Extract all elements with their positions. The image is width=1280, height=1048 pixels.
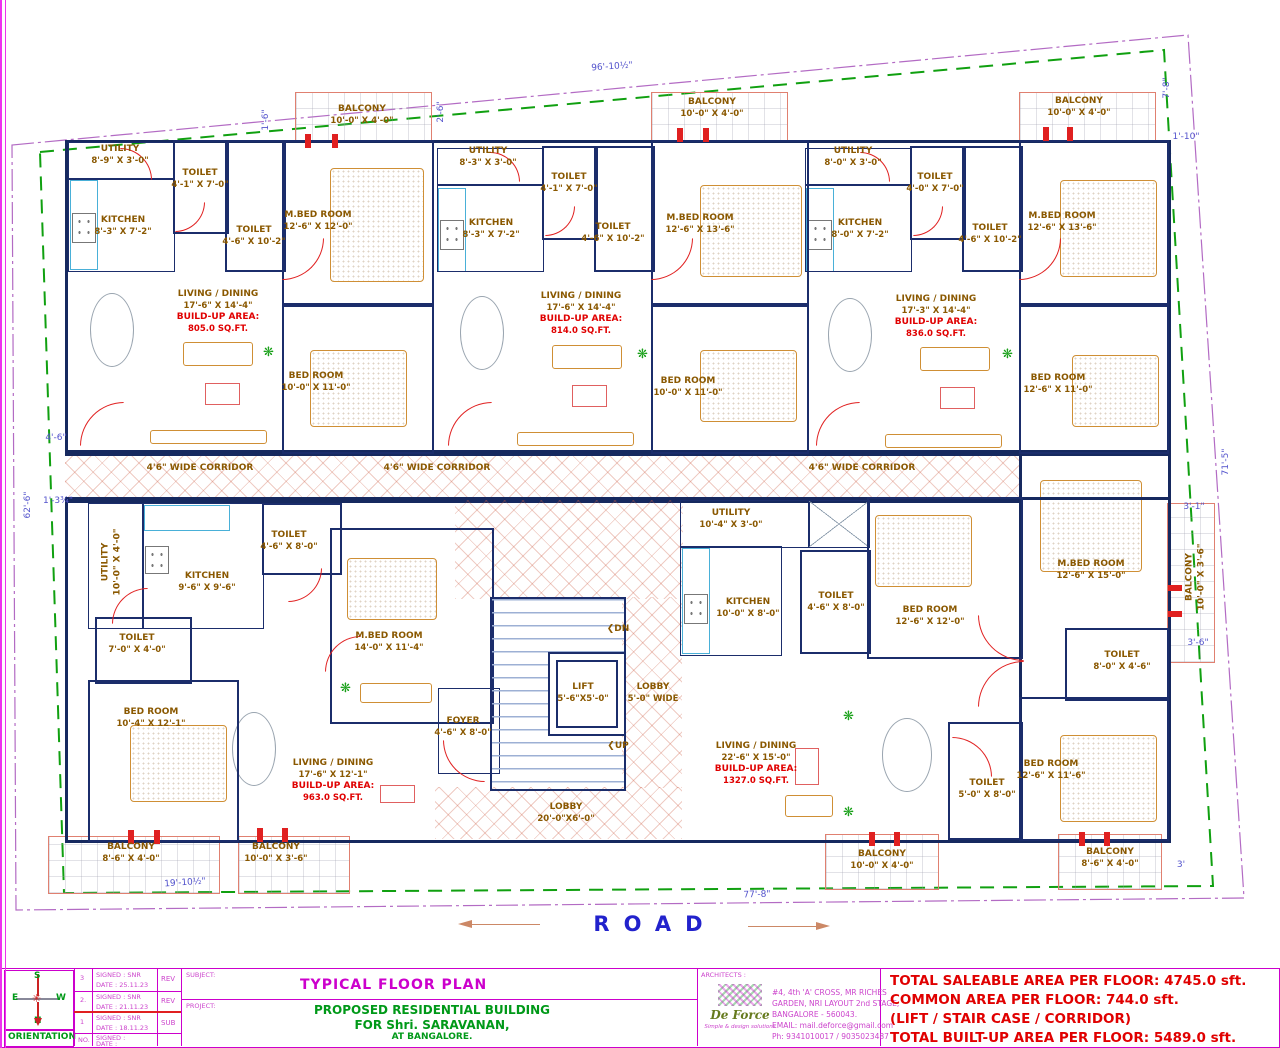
project-label: PROJECT: — [186, 1002, 216, 1010]
titleblock-border — [697, 968, 698, 1046]
corridor — [65, 450, 1022, 503]
label-living-e: LIVING / DINING22'-6" X 15'-0"BUILD-UP A… — [715, 741, 797, 787]
label-living-a: LIVING / DINING17'-6" X 14'-4"BUILD-UP A… — [177, 289, 259, 335]
rev-signed: SIGNED : SNR — [96, 1014, 141, 1022]
rev-status: REV — [161, 975, 175, 983]
project-line1: PROPOSED RESIDENTIAL BUILDING — [314, 1003, 550, 1017]
dim-top-right-v: 7'-8" — [1162, 77, 1172, 98]
rev-status: REV — [161, 997, 175, 1005]
compass-south: S — [34, 971, 40, 981]
sheet-border-left — [0, 0, 2, 1048]
dim-left-2: 1'-3¾" — [43, 496, 73, 506]
dim-top-left-2: 2'-6" — [436, 101, 446, 122]
rev-signed: SIGNED : SNR — [96, 993, 141, 1001]
road-arrow-left — [472, 924, 540, 925]
plant-icon: ❋ — [1002, 348, 1013, 361]
label-lift: LIFT5'-6"X5'-0" — [557, 682, 608, 705]
label-bed-c: BED ROOM12'-6" X 11'-0" — [1023, 373, 1092, 396]
plant-icon: ❋ — [637, 348, 648, 361]
dim-top-left-1: 1'-6" — [261, 109, 271, 130]
rev-date: DATE : — [96, 1040, 117, 1048]
label-balcony-b: BALCONY10'-0" X 4'-0" — [680, 97, 743, 120]
door-opening — [332, 134, 338, 148]
common-area: COMMON AREA PER FLOOR: 744.0 sft. — [890, 992, 1179, 1008]
label-utility-c: UTILITY8'-0" X 3'-0" — [824, 146, 881, 169]
titleblock-border — [182, 999, 697, 1000]
plant-icon: ❋ — [340, 682, 351, 695]
label-toilet2-a: TOILET4'-6" X 10'-2" — [222, 225, 285, 248]
label-kitchen-a: KITCHEN8'-3" X 7'-2" — [94, 215, 151, 238]
firm-tagline: Simple & design solutions — [704, 1024, 775, 1030]
dim-left-1: 4'-6" — [45, 433, 66, 443]
total-builtup-area: TOTAL BUILT-UP AREA PER FLOOR: 5489.0 sf… — [890, 1030, 1236, 1046]
label-mbed-c: M.BED ROOM12'-6" X 13'-6" — [1027, 211, 1096, 234]
label-balcony-c: BALCONY10'-0" X 4'-0" — [1047, 96, 1110, 119]
room-toilet2-c — [962, 146, 1023, 272]
door-opening — [1079, 832, 1085, 846]
label-stairs-dn: ❮DN — [607, 624, 630, 636]
dim-top-right-h: 1'-10" — [1172, 132, 1199, 142]
label-toilet1-d: TOILET4'-6" X 8'-0" — [260, 530, 317, 553]
label-balcony2-d: BALCONY10'-0" X 3'-6" — [244, 842, 307, 865]
compass-arrow-icon — [34, 1018, 42, 1026]
label-foyer-d: FOYER4'-6" X 8'-0" — [434, 716, 491, 739]
door-opening — [305, 134, 311, 148]
label-living-b: LIVING / DINING17'-6" X 14'-4"BUILD-UP A… — [540, 291, 622, 337]
project-line3: AT BANGALORE. — [392, 1032, 473, 1042]
label-lobby-side: LOBBY5'-0" WIDE — [628, 682, 679, 705]
revtable-border — [74, 991, 181, 992]
project-line2: FOR Shri. SARAVANAN, — [354, 1018, 509, 1032]
label-balcony-right-e: BALCONY10'-0" X 3'-6" — [1185, 544, 1208, 611]
label-living-c: LIVING / DINING17'-3" X 14'-4"BUILD-UP A… — [895, 294, 977, 340]
revtable-border — [92, 968, 93, 1046]
label-utility-b: UTILITY8'-3" X 3'-0" — [459, 146, 516, 169]
road-arrow-right-head — [816, 922, 830, 930]
door-opening — [282, 828, 288, 842]
label-toilet2-b: TOILET4'-6" X 10'-2" — [581, 222, 644, 245]
dim-right-3: 3' — [1177, 860, 1185, 870]
door-opening — [1168, 585, 1182, 591]
road-arrow-right — [748, 926, 816, 927]
label-toilet2-c: TOILET4'-6" X 10'-2" — [958, 223, 1021, 246]
firm-address-5: Ph: 9341010017 / 9035023487 — [772, 1032, 889, 1041]
label-mbed-e: M.BED ROOM12'-6" X 15'-0" — [1056, 559, 1125, 582]
rev-status: SUB — [161, 1019, 175, 1027]
road-arrow-left-head — [458, 920, 472, 928]
revtable-border — [74, 1033, 181, 1034]
label-toilet1-c: TOILET4'-0" X 7'-0" — [906, 172, 963, 195]
label-utility-a: UTILITY8'-9" X 3'-0" — [91, 144, 148, 167]
firm-address-2: GARDEN, NRI LAYOUT 2nd STAGE, — [772, 999, 899, 1008]
label-balcony-a: BALCONY10'-0" X 4'-0" — [330, 104, 393, 127]
rev-date: DATE : 18.11.23 — [96, 1024, 148, 1032]
revtable-border — [157, 968, 158, 1046]
architects-label: ARCHITECTS : — [701, 971, 746, 979]
sheet-border-left-inner — [5, 0, 6, 1048]
label-bed-b: BED ROOM10'-0" X 11'-0" — [653, 376, 722, 399]
label-balcony2-e: BALCONY8'-6" X 4'-0" — [1081, 847, 1138, 870]
plant-icon: ❋ — [843, 806, 854, 819]
wardrobe-x-symbol — [808, 500, 870, 548]
firm-address-4: EMAIL: mail.deforce@gmail.com — [772, 1021, 893, 1030]
room-toilet2-b — [594, 146, 655, 272]
dim-right-2: 3'-6" — [1187, 638, 1208, 648]
label-mbed-a: M.BED ROOM12'-6" X 12'-0" — [283, 210, 352, 233]
room-kitchen-d — [142, 503, 264, 629]
rev-signed: SIGNED : SNR — [96, 971, 141, 979]
compass-star-icon: ✳ — [32, 992, 41, 1005]
label-bed-d: BED ROOM10'-4" X 12'-1" — [116, 707, 185, 730]
rev-no: 3 — [80, 974, 84, 982]
door-opening — [894, 832, 900, 846]
common-area-note: (LIFT / STAIR CASE / CORRIDOR) — [890, 1011, 1131, 1027]
revtable-divider-red — [74, 1011, 181, 1013]
subject-label: SUBJECT: — [186, 971, 215, 979]
label-toilet1-a: TOILET4'-1" X 7'-0" — [171, 168, 228, 191]
door-opening — [1067, 127, 1073, 141]
label-toilet3-e: TOILET8'-0" X 4'-6" — [1093, 650, 1150, 673]
rev-no: 2. — [80, 996, 86, 1004]
compass-east: E — [12, 993, 18, 1003]
label-mbed-b: M.BED ROOM12'-6" X 13'-6" — [665, 213, 734, 236]
floor-plan-sheet: UTILITY8'-9" X 3'-0" TOILET4'-1" X 7'-0"… — [0, 0, 1280, 1048]
label-toilet2-d: TOILET7'-0" X 4'-0" — [108, 633, 165, 656]
label-balcony1-d: BALCONY8'-6" X 4'-0" — [102, 842, 159, 865]
firm-name: De Force — [710, 1008, 769, 1022]
door-opening — [1043, 127, 1049, 141]
label-bed1-e: BED ROOM12'-6" X 12'-0" — [895, 605, 964, 628]
label-toilet1-b: TOILET4'-1" X 7'-0" — [540, 172, 597, 195]
label-corridor-3: 4'6" WIDE CORRIDOR — [809, 463, 916, 475]
firm-address-1: #4, 4th 'A' CROSS, MR RICHES — [772, 988, 887, 997]
rev-no: 1 — [80, 1018, 84, 1026]
label-corridor-1: 4'6" WIDE CORRIDOR — [147, 463, 254, 475]
label-stairs-up: ❮UP — [607, 741, 628, 753]
dim-left: 62'-6" — [23, 491, 33, 518]
rev-date: DATE : 25.11.23 — [96, 981, 148, 989]
label-bed2-e: BED ROOM12'-6" X 11'-6" — [1016, 759, 1085, 782]
door-opening — [703, 128, 709, 142]
dim-bottom: 77'-8" — [743, 890, 770, 901]
label-kitchen-e: KITCHEN10'-0" X 8'-0" — [716, 597, 779, 620]
door-opening — [677, 128, 683, 142]
door-opening — [1104, 832, 1110, 846]
label-utility-e: UTILITY10'-4" X 3'-0" — [699, 508, 762, 531]
plant-icon: ❋ — [263, 346, 274, 359]
label-toilet1-e: TOILET4'-6" X 8'-0" — [807, 591, 864, 614]
firm-logo-icon — [718, 984, 762, 1006]
orientation-label: ORIENTATION — [8, 1032, 76, 1042]
rev-date: DATE : 21.11.23 — [96, 1003, 148, 1011]
label-mbed-d: M.BED ROOM14'-0" X 11'-4" — [354, 631, 423, 654]
label-kitchen-d: KITCHEN9'-6" X 9'-6" — [178, 571, 235, 594]
revtable-border — [181, 968, 182, 1046]
total-saleable-area: TOTAL SALEABLE AREA PER FLOOR: 4745.0 sf… — [890, 973, 1246, 989]
revtable-border — [74, 968, 75, 1046]
sheet-subject: TYPICAL FLOOR PLAN — [300, 977, 487, 993]
label-utility-d: UTILITY10'-0" X 4'-0" — [101, 529, 124, 596]
label-lobby-main: LOBBY20'-0"X6'-0" — [537, 802, 594, 825]
label-kitchen-b: KITCHEN8'-3" X 7'-2" — [462, 218, 519, 241]
room-toilet2-a — [225, 140, 286, 272]
label-kitchen-c: KITCHEN8'-0" X 7'-2" — [831, 218, 888, 241]
room-bed-d — [88, 680, 239, 842]
label-bed-a: BED ROOM10'-0" X 11'-0" — [281, 371, 350, 394]
rev-no: NO. — [78, 1036, 90, 1044]
door-opening — [1168, 611, 1182, 617]
road-label: ROAD — [593, 912, 716, 936]
firm-address-3: BANGALORE - 560043. — [772, 1010, 857, 1019]
dim-right-1: 3'-1" — [1183, 502, 1204, 512]
label-balcony1-e: BALCONY10'-0" X 4'-0" — [850, 849, 913, 872]
door-opening — [257, 828, 263, 842]
label-toilet2-e: TOILET5'-0" X 8'-0" — [958, 778, 1015, 801]
dim-right: 71'-5" — [1221, 448, 1231, 475]
compass-west: W — [56, 993, 66, 1003]
door-opening — [869, 832, 875, 846]
label-living-d: LIVING / DINING17'-6" X 12'-1"BUILD-UP A… — [292, 758, 374, 804]
label-corridor-2: 4'6" WIDE CORRIDOR — [384, 463, 491, 475]
plant-icon: ❋ — [843, 710, 854, 723]
